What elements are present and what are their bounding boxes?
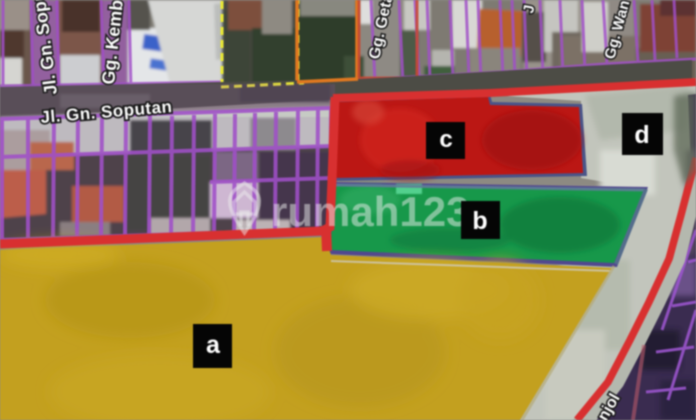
svg-text:c: c (439, 126, 452, 153)
svg-text:a: a (206, 331, 221, 359)
svg-text:d: d (634, 121, 649, 149)
svg-text:b: b (472, 207, 487, 235)
svg-text:rumah123: rumah123 (271, 188, 469, 235)
